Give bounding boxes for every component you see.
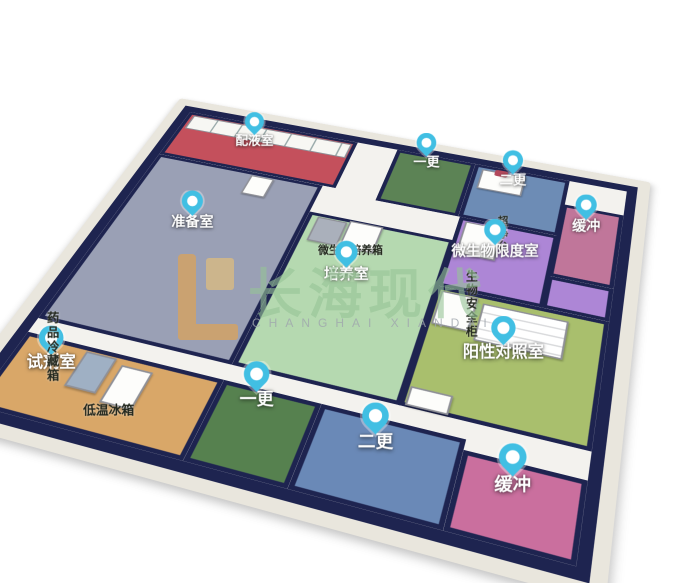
room-label-yangxing-duizhaoshi: 阳性对照室	[432, 344, 574, 362]
map-pin-icon[interactable]	[239, 356, 275, 392]
room-label-weishengwu-xiandushi: 微生物限度室	[431, 244, 558, 260]
room-label-huanchong-bottom: 缓冲	[432, 475, 593, 495]
map-pin-icon[interactable]	[177, 186, 207, 216]
room-label-ergeng-top: 二更	[454, 174, 571, 189]
map-pin-icon[interactable]	[493, 438, 532, 477]
map-pin-icon[interactable]	[357, 397, 395, 435]
room-label-peiyeshi: 配液室	[199, 134, 310, 148]
floorplan-3d: 配液室 一更 二更 缓冲 微生物限度室 准备室 培养室 阳性对照室 一更 二	[0, 98, 651, 583]
map-pin-icon[interactable]	[486, 311, 520, 345]
room-label-peiyangshi: 培养室	[281, 267, 412, 283]
map-pin-icon[interactable]	[241, 108, 268, 135]
map-pin-icon[interactable]	[480, 214, 511, 245]
room-label-ergeng-bottom: 二更	[298, 433, 453, 452]
map-pin-icon[interactable]	[331, 236, 363, 268]
low-temp-freezer-label: 低温冰箱	[50, 401, 167, 419]
room-label-zhunbeishi: 准备室	[131, 215, 254, 230]
medicine-fridge-label: 药品冷藏箱	[44, 311, 61, 383]
lab-floorplan-scene: 配液室 一更 二更 缓冲 微生物限度室 准备室 培养室 阳性对照室 一更 二	[0, 0, 685, 583]
map-pin-icon[interactable]	[571, 190, 601, 220]
map-pin-icon[interactable]	[413, 129, 441, 157]
